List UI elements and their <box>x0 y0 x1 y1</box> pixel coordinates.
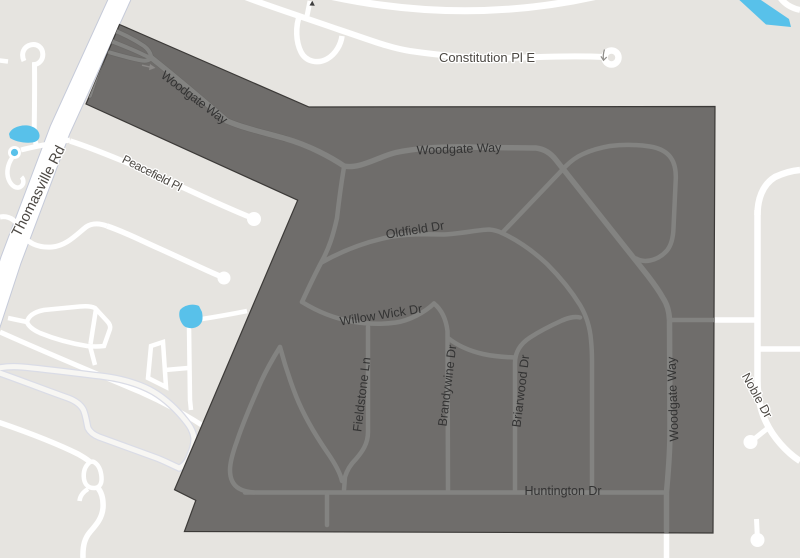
svg-text:Huntington Dr: Huntington Dr <box>524 484 601 498</box>
svg-text:Woodgate Way: Woodgate Way <box>416 140 502 157</box>
svg-text:Constitution Pl E: Constitution Pl E <box>439 50 535 65</box>
svg-text:Woodgate Way: Woodgate Way <box>664 356 681 442</box>
